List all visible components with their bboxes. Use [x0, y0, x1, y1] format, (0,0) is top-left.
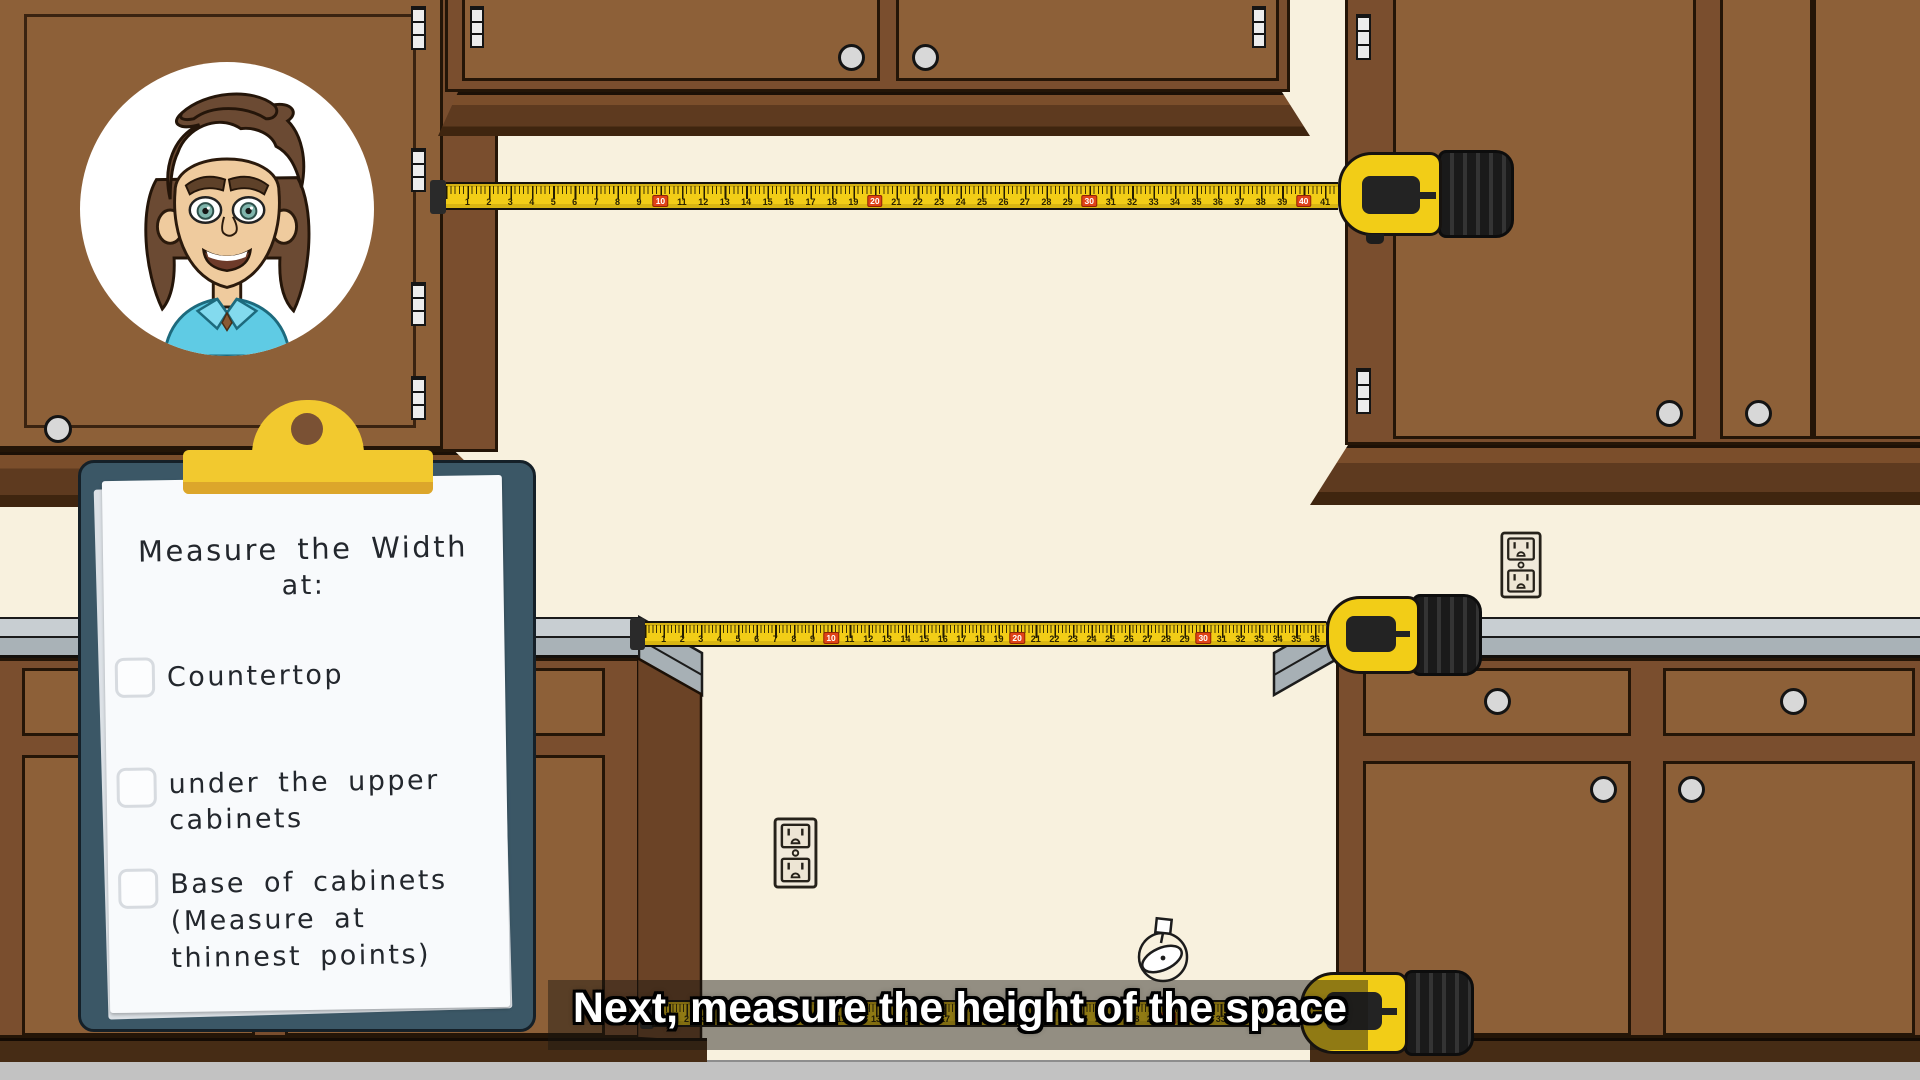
tape-number: 6 — [754, 634, 759, 644]
tape-number-marker: 20 — [1009, 632, 1024, 644]
tape-number: 11 — [845, 634, 855, 644]
tape-number: 4 — [529, 197, 534, 207]
checklist-item-under-upper-cabinets: under the upper cabinets — [168, 763, 440, 839]
tape-number: 12 — [863, 634, 873, 644]
checklist-item-countertop: Countertop — [167, 657, 345, 696]
drawer-knob — [1780, 688, 1807, 715]
cabinet-knob — [44, 415, 72, 443]
upper-right-cabinet-molding — [1310, 445, 1920, 505]
tape-measure-doodle-icon — [1130, 916, 1194, 984]
upper-middle-door-left — [462, 0, 880, 81]
tape-number: 25 — [977, 197, 987, 207]
tape-number: 2 — [680, 634, 685, 644]
door-knob — [1678, 776, 1705, 803]
tape-number: 18 — [827, 197, 837, 207]
tape-number: 12 — [698, 197, 708, 207]
tape-number-marker: 30 — [1082, 195, 1097, 207]
tape-number: 16 — [784, 197, 794, 207]
tape-number-marker: 10 — [823, 632, 838, 644]
tape-number: 35 — [1191, 197, 1201, 207]
drawer-knob — [1484, 688, 1511, 715]
tape-number: 36 — [1310, 634, 1320, 644]
tape-belt-clip — [1366, 234, 1384, 244]
tape-number: 29 — [1063, 197, 1073, 207]
tape-number: 3 — [508, 197, 513, 207]
checklist-item-base-of-cabinets: Base of cabinets (Measure at thinnest po… — [170, 862, 449, 977]
tape-number: 25 — [1105, 634, 1115, 644]
tape-number: 21 — [891, 197, 901, 207]
hinge-icon — [411, 376, 426, 420]
tape-number: 33 — [1149, 197, 1159, 207]
tape-number: 5 — [736, 634, 741, 644]
tape-number: 11 — [677, 197, 687, 207]
hinge-icon — [411, 148, 426, 192]
tape-number: 27 — [1020, 197, 1030, 207]
tape-number: 2 — [486, 197, 491, 207]
tape-number: 1 — [465, 197, 470, 207]
tape-number: 23 — [934, 197, 944, 207]
checklist-title: Measure the Width — [103, 529, 503, 569]
checkbox-countertop — [115, 657, 156, 698]
tape-number: 36 — [1213, 197, 1223, 207]
upper-middle-cabinets — [445, 0, 1290, 92]
clipboard-clip-bar — [183, 450, 433, 494]
tape-number: 22 — [1049, 634, 1059, 644]
hinge-icon — [411, 6, 426, 50]
tape-number: 15 — [919, 634, 929, 644]
tape-number: 8 — [615, 197, 620, 207]
tape-lock — [1362, 176, 1420, 214]
tape-number: 19 — [994, 634, 1004, 644]
tape-number: 28 — [1041, 197, 1051, 207]
tape-number: 22 — [913, 197, 923, 207]
clipboard-clip-hole — [291, 413, 323, 445]
tape-number: 6 — [572, 197, 577, 207]
tape-number: 37 — [1234, 197, 1244, 207]
tape-number: 28 — [1161, 634, 1171, 644]
tape-lock-stub — [1420, 192, 1436, 199]
tape-number: 18 — [975, 634, 985, 644]
floor — [0, 1060, 1920, 1080]
tape-measure-grip — [1412, 594, 1482, 676]
tape-number: 31 — [1106, 197, 1116, 207]
tape-number: 8 — [791, 634, 796, 644]
tape-measure-blade-middle: 1234567891011121314151617181920212223242… — [645, 621, 1326, 647]
tape-number: 7 — [773, 634, 778, 644]
checklist-item-line: Countertop — [167, 657, 345, 696]
upper-middle-door-right — [896, 0, 1279, 81]
tape-number-marker: 20 — [867, 195, 882, 207]
tape-number: 9 — [636, 197, 641, 207]
tape-number: 24 — [956, 197, 966, 207]
tape-number: 17 — [956, 634, 966, 644]
tape-number: 7 — [594, 197, 599, 207]
tape-lock-stub — [1396, 631, 1410, 637]
checklist-item-line: cabinets — [169, 799, 441, 839]
tape-number: 29 — [1180, 634, 1190, 644]
checkbox-base-of-cabinets — [118, 868, 159, 909]
wall-outlet-icon — [772, 817, 819, 889]
checkbox-under-upper-cabinets — [116, 767, 157, 808]
clipboard-paper: Measure the Width at: Countertop under t… — [102, 475, 510, 1013]
tape-number: 19 — [848, 197, 858, 207]
tape-number: 3 — [698, 634, 703, 644]
cabinet-knob — [1656, 400, 1683, 427]
tape-number-marker: 30 — [1195, 632, 1210, 644]
tape-number: 16 — [938, 634, 948, 644]
hinge-icon — [411, 282, 426, 326]
door-knob — [1590, 776, 1617, 803]
upper-middle-cabinet-molding — [438, 92, 1310, 136]
tape-number: 33 — [1254, 634, 1264, 644]
tape-number: 32 — [1235, 634, 1245, 644]
tape-number: 26 — [1124, 634, 1134, 644]
tape-number: 13 — [720, 197, 730, 207]
kitchen-illustration-frame: 1234567891011121314151617181920212223242… — [0, 0, 1920, 1080]
checklist-title-suffix: at: — [103, 567, 503, 604]
presenter-avatar-drawing — [80, 62, 374, 356]
hinge-icon — [1252, 6, 1266, 48]
tape-number: 32 — [1127, 197, 1137, 207]
tape-number-marker: 40 — [1296, 195, 1311, 207]
tape-number: 38 — [1256, 197, 1266, 207]
tape-number: 26 — [998, 197, 1008, 207]
tape-number: 39 — [1277, 197, 1287, 207]
hinge-icon — [1356, 368, 1371, 414]
checklist-item-line: Base of cabinets — [170, 862, 448, 903]
tape-hook — [430, 180, 446, 214]
tape-number: 9 — [810, 634, 815, 644]
cabinet-knob — [1745, 400, 1772, 427]
checklist-item-line: under the upper — [168, 763, 440, 803]
hinge-icon — [470, 6, 484, 48]
checklist-item-line: (Measure at — [170, 899, 448, 940]
tape-number: 15 — [763, 197, 773, 207]
tape-number: 41 — [1320, 197, 1330, 207]
tape-number: 35 — [1291, 634, 1301, 644]
tape-number: 13 — [882, 634, 892, 644]
tape-number: 34 — [1273, 634, 1283, 644]
tape-number: 23 — [1068, 634, 1078, 644]
cabinet-knob — [912, 44, 939, 71]
tape-number: 24 — [1087, 634, 1097, 644]
tape-number: 31 — [1217, 634, 1227, 644]
presenter-avatar — [80, 62, 374, 356]
tape-number: 21 — [1031, 634, 1041, 644]
tape-measure-grip — [1438, 150, 1514, 238]
cabinet-knob — [838, 44, 865, 71]
checklist-item-line: thinnest points) — [171, 936, 449, 977]
tape-number: 17 — [806, 197, 816, 207]
tape-measure-blade-top: 1234567891011121314151617181920212223242… — [446, 182, 1338, 210]
tape-lock — [1346, 616, 1396, 652]
upper-right-door-middle — [1720, 0, 1813, 439]
upper-right-door-right — [1813, 0, 1920, 439]
tape-number: 34 — [1170, 197, 1180, 207]
tape-number: 5 — [551, 197, 556, 207]
caption-text: Next, measure the height of the space — [0, 984, 1920, 1033]
tape-number: 1 — [661, 634, 666, 644]
tape-hook — [630, 618, 645, 650]
tape-number: 14 — [900, 634, 910, 644]
wall-outlet-icon — [1500, 531, 1542, 599]
tape-number: 4 — [717, 634, 722, 644]
tape-number-marker: 10 — [653, 195, 668, 207]
hinge-icon — [1356, 14, 1371, 60]
tape-number: 27 — [1142, 634, 1152, 644]
tape-number: 14 — [741, 197, 751, 207]
